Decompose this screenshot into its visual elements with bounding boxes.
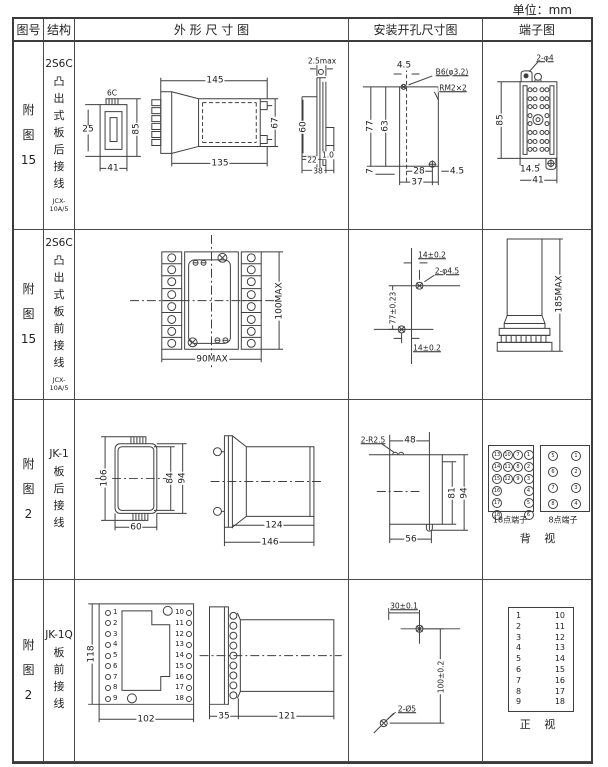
label-8-point: 8点端子 xyxy=(548,515,577,526)
dim-145: 145 xyxy=(205,77,224,86)
figure-cell-row4: 附 图 2 xyxy=(14,580,44,762)
figure-cell-row3: 附 图 2 xyxy=(14,400,44,580)
pin-list-left: 123456789 xyxy=(105,609,117,702)
dim-4-5-right: 4.5 xyxy=(449,168,465,177)
outline-cell-row1: 6C 25 85 41 145 135 67 2.5max 60 22 1.0 … xyxy=(75,42,349,230)
dim-63: 63 xyxy=(382,119,391,132)
header-mounting: 安装开孔尺寸图 xyxy=(349,19,483,42)
dim-56: 56 xyxy=(404,536,417,545)
structure-type: JK-1Q xyxy=(45,629,73,641)
terminal-cell-row2: 185MAX xyxy=(483,230,591,400)
dim-1-0: 1.0 xyxy=(321,151,335,159)
dim-2-5max: 2.5max xyxy=(307,57,337,65)
dim-60-r3: 60 xyxy=(129,524,142,533)
structure-model-code: JCX-10A/5 xyxy=(44,197,74,213)
header-outline: 外 形 尺 寸 图 xyxy=(75,19,349,42)
dim-37: 37 xyxy=(410,179,423,188)
terminal-cell-row3: 131071141182151293164175186 51627384 18点… xyxy=(483,400,591,580)
dim-100max: 100MAX xyxy=(276,281,285,320)
dim-hole-spec: B6(φ3.2) xyxy=(435,68,470,76)
dim-84: 84 xyxy=(167,471,176,484)
figure-cell-row2: 附 图 15 xyxy=(14,230,44,400)
dim-14-5: 14.5 xyxy=(519,166,541,175)
dim-85: 85 xyxy=(133,122,142,135)
header-figure: 图号 xyxy=(14,19,44,42)
dim-94-mounting: 94 xyxy=(461,486,470,499)
structure-description: 板 后 接 线 xyxy=(54,463,65,531)
structure-model-code: JCX-10A/5 xyxy=(44,376,74,392)
pin-list-right: 101112131415161718 xyxy=(171,609,192,702)
dim-85-terminal: 85 xyxy=(497,113,506,126)
terminal-grid-18: 131071141182151293164175186 xyxy=(492,450,533,520)
dim-81: 81 xyxy=(449,486,458,499)
outline-cell-row3: 106 84 94 60 124 146 xyxy=(75,400,349,580)
dim-60: 60 xyxy=(300,120,309,133)
figure-cell-row1: 附 图 15 xyxy=(14,42,44,230)
dim-90max: 90MAX xyxy=(195,356,229,365)
structure-type: 2S6C xyxy=(45,58,72,70)
structure-type: JK-1 xyxy=(49,448,68,460)
figure-number: 附 图 15 xyxy=(21,98,36,174)
figure-number: 附 图 2 xyxy=(22,452,34,528)
dim-7: 7 xyxy=(367,167,376,175)
structure-cell-row3: JK-1 板 后 接 线 xyxy=(44,400,75,580)
dim-100-tol: 100±0.2 xyxy=(437,660,445,695)
dim-22: 22 xyxy=(306,156,318,164)
relay-outline-drawing-r1 xyxy=(75,42,348,229)
terminal-numbers-right: 101112131415161718 xyxy=(547,611,565,708)
label-18-point: 18点端子 xyxy=(493,515,527,526)
header-structure: 结构 xyxy=(44,19,75,42)
label-front-view: 正 视 xyxy=(520,716,561,732)
label-rear-view: 背 视 xyxy=(520,530,561,546)
dim-thread-spec: RM2×2 xyxy=(438,84,468,92)
terminal-cell-row1: 2-φ4 85 14.5 41 xyxy=(483,42,591,230)
dim-30-tol: 30±0.1 xyxy=(389,602,419,610)
dim-35: 35 xyxy=(217,713,230,722)
dim-146: 146 xyxy=(260,539,279,548)
relay-side-drawing-r2 xyxy=(483,230,591,399)
mounting-cell-row2: 14±0.2 2-φ4.5 77±0.23 14±0.2 xyxy=(349,230,483,400)
terminal-numbers-left: 123456789 xyxy=(516,611,521,708)
structure-description: 凸 出 式 板 后 接 线 xyxy=(54,73,65,192)
page: 单位：mm 图号 结构 外 形 尺 寸 图 安装开孔尺寸图 端子图 附 图 15… xyxy=(0,0,608,767)
relay-outline-drawing-r3 xyxy=(75,400,348,579)
dim-25: 25 xyxy=(81,126,94,135)
mounting-cell-row4: 30±0.1 100±0.2 2-Ø5 xyxy=(349,580,483,762)
dim-14-bottom: 14±0.2 xyxy=(412,344,442,352)
dim-28: 28 xyxy=(412,168,425,177)
dim-102: 102 xyxy=(136,716,155,725)
figure-number: 附 图 15 xyxy=(21,277,36,353)
structure-cell-row1: 2S6C 凸 出 式 板 后 接 线 JCX-10A/5 xyxy=(44,42,75,230)
dim-106: 106 xyxy=(101,468,110,487)
dim-185max: 185MAX xyxy=(556,274,565,313)
outline-cell-row4: 123456789 101112131415161718 118 102 35 … xyxy=(75,580,349,762)
terminal-grid-8: 51627384 xyxy=(548,451,581,509)
mounting-drawing-r2 xyxy=(349,230,482,399)
dim-121: 121 xyxy=(277,713,296,722)
terminal-cell-row4: 123456789 101112131415161718 正 视 xyxy=(483,580,591,762)
structure-description: 板 前 接 线 xyxy=(54,644,65,712)
spec-table: 图号 结构 外 形 尺 寸 图 安装开孔尺寸图 端子图 附 图 15 2S6C … xyxy=(12,17,593,764)
dim-118: 118 xyxy=(88,644,97,663)
unit-label: 单位：mm xyxy=(513,1,572,18)
header-terminal: 端子图 xyxy=(483,19,591,42)
dim-135: 135 xyxy=(210,160,229,169)
outline-cell-row2: 100MAX 90MAX xyxy=(75,230,349,400)
dim-2-phi4: 2-φ4 xyxy=(535,54,554,62)
socket-outline-drawing-r2 xyxy=(75,230,348,399)
dim-14-top: 14±0.2 xyxy=(417,251,447,259)
mounting-cell-row3: 2-R2.5 48 81 94 56 xyxy=(349,400,483,580)
dim-67: 67 xyxy=(272,116,281,129)
figure-number: 附 图 2 xyxy=(22,633,34,709)
dim-2-phi4-5: 2-φ4.5 xyxy=(434,267,460,275)
dim-48: 48 xyxy=(403,437,416,446)
dim-6c: 6C xyxy=(106,89,118,97)
dim-124: 124 xyxy=(264,522,283,531)
dim-77-tol: 77±0.23 xyxy=(389,291,397,326)
structure-cell-row4: JK-1Q 板 前 接 线 xyxy=(44,580,75,762)
dim-77: 77 xyxy=(367,119,376,132)
mounting-cell-row1: 4.5 B6(φ3.2) RM2×2 77 63 7 28 37 4.5 xyxy=(349,42,483,230)
dim-4-5-top: 4.5 xyxy=(396,62,412,71)
terminal-drawing-r1 xyxy=(483,42,591,229)
dim-94: 94 xyxy=(179,471,188,484)
dim-2-phi5: 2-Ø5 xyxy=(397,705,417,713)
dim-41: 41 xyxy=(106,165,119,174)
structure-description: 凸 出 式 板 前 接 线 xyxy=(54,252,65,371)
structure-cell-row2: 2S6C 凸 出 式 板 前 接 线 JCX-10A/5 xyxy=(44,230,75,400)
dim-2-r2-5: 2-R2.5 xyxy=(360,436,387,444)
structure-type: 2S6C xyxy=(45,237,72,249)
dim-41-terminal: 41 xyxy=(531,177,544,186)
dim-38: 38 xyxy=(312,167,324,175)
